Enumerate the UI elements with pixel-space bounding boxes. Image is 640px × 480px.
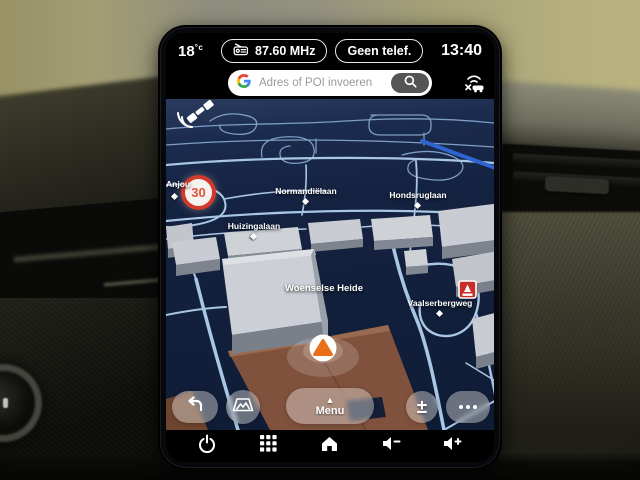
no-connection-icon <box>462 71 486 98</box>
back-button[interactable] <box>172 391 218 423</box>
phone-status-pill[interactable]: Geen telef. <box>335 39 423 63</box>
volume-down-icon <box>382 436 402 456</box>
back-arrow-icon <box>184 396 206 418</box>
status-bar: 18°c 87.60 MHz Geen telef. 13:40 <box>166 33 494 69</box>
vent-slat <box>513 153 640 170</box>
zoom-plus-minus-icon: ± <box>417 398 427 417</box>
volume-up-button[interactable] <box>435 433 471 459</box>
map-controls: ▲ Menu ± <box>166 388 494 426</box>
volume-down-button[interactable] <box>374 433 410 459</box>
screen-content: 18°c 87.60 MHz Geen telef. 13:40 <box>166 33 494 462</box>
clock: 13:40 <box>441 42 482 60</box>
power-icon <box>198 434 216 458</box>
navigation-map[interactable]: 30 Anjou Normandiëlaan Hondsruglaan Huiz… <box>166 99 494 430</box>
search-icon <box>403 74 418 92</box>
search-input[interactable] <box>257 76 385 90</box>
speed-limit-sign: 30 <box>181 175 216 210</box>
apps-grid-icon <box>260 435 277 457</box>
gps-satellite-icon <box>174 99 218 142</box>
car-dashboard-photo: 18°c 87.60 MHz Geen telef. 13:40 <box>0 0 640 480</box>
radio-source-pill[interactable]: 87.60 MHz <box>221 39 327 63</box>
volume-up-icon <box>443 436 463 456</box>
infotainment-screen: 18°c 87.60 MHz Geen telef. 13:40 <box>160 27 500 468</box>
menu-up-arrow-icon: ▲ <box>326 396 335 405</box>
search-row <box>166 69 494 99</box>
vent-handle <box>545 176 609 194</box>
power-button[interactable] <box>189 433 225 459</box>
fuel-poi-icon[interactable] <box>459 281 476 298</box>
menu-label: Menu <box>316 405 345 417</box>
map-view-icon <box>232 397 254 418</box>
home-button[interactable] <box>312 433 348 459</box>
dashboard-fabric <box>498 212 640 480</box>
vehicle-position-icon <box>310 335 337 362</box>
search-button[interactable] <box>391 73 429 93</box>
radio-icon <box>233 43 249 59</box>
more-options-button[interactable] <box>446 391 490 423</box>
radio-frequency: 87.60 MHz <box>255 44 315 58</box>
knob-marking <box>3 398 8 408</box>
search-bar[interactable] <box>228 70 432 96</box>
google-icon <box>237 74 251 93</box>
system-bar <box>166 430 494 462</box>
home-icon <box>320 435 339 457</box>
more-icon <box>459 405 477 409</box>
map-view-button[interactable] <box>226 390 260 424</box>
phone-status-label: Geen telef. <box>347 44 411 58</box>
temperature-readout: 18°c <box>178 43 203 60</box>
zoom-button[interactable]: ± <box>406 391 438 423</box>
menu-button[interactable]: ▲ Menu <box>286 388 374 424</box>
apps-button[interactable] <box>250 433 286 459</box>
